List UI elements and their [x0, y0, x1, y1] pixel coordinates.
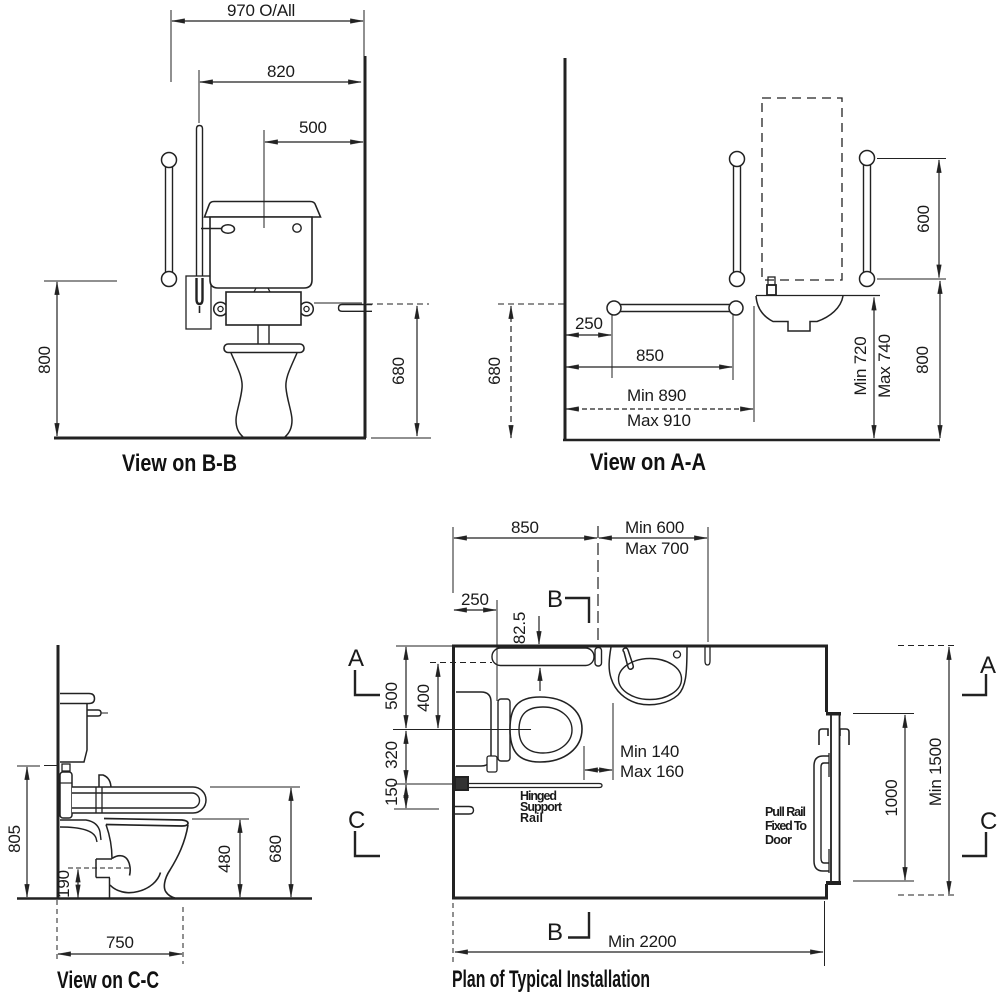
- svg-text:B: B: [547, 586, 563, 613]
- svg-text:A: A: [348, 645, 364, 672]
- svg-text:500: 500: [382, 682, 401, 710]
- svg-text:850: 850: [636, 346, 664, 365]
- svg-text:190: 190: [54, 870, 73, 898]
- svg-text:680: 680: [485, 357, 504, 385]
- svg-text:680: 680: [389, 357, 408, 385]
- svg-text:320: 320: [382, 741, 401, 769]
- svg-text:250: 250: [461, 590, 489, 609]
- svg-text:C: C: [348, 807, 365, 834]
- svg-text:850: 850: [511, 518, 539, 537]
- svg-text:View on B-B: View on B-B: [122, 450, 237, 477]
- svg-text:View on A-A: View on A-A: [590, 449, 706, 476]
- svg-text:400: 400: [414, 684, 433, 712]
- svg-text:Rail: Rail: [520, 811, 543, 825]
- svg-text:B: B: [547, 919, 563, 946]
- svg-text:480: 480: [215, 845, 234, 873]
- svg-text:Min 720: Min 720: [851, 336, 870, 395]
- svg-text:1000: 1000: [882, 779, 901, 816]
- svg-text:800: 800: [913, 346, 932, 374]
- svg-text:Plan of Typical Installation: Plan of Typical Installation: [452, 966, 650, 993]
- svg-text:View on C-C: View on C-C: [57, 967, 159, 994]
- svg-text:500: 500: [299, 118, 327, 137]
- svg-text:Door: Door: [765, 833, 792, 847]
- svg-text:Min 1500: Min 1500: [926, 738, 945, 806]
- svg-text:750: 750: [106, 933, 134, 952]
- svg-text:680: 680: [266, 835, 285, 863]
- svg-text:150: 150: [382, 778, 401, 806]
- svg-text:Pull Rail: Pull Rail: [765, 805, 806, 819]
- svg-text:800: 800: [35, 346, 54, 374]
- svg-text:Fixed To: Fixed To: [765, 819, 807, 833]
- svg-text:820: 820: [267, 62, 295, 81]
- svg-text:250: 250: [575, 314, 603, 333]
- svg-text:Max 910: Max 910: [627, 411, 691, 430]
- svg-text:600: 600: [914, 205, 933, 233]
- svg-text:C: C: [980, 808, 997, 835]
- svg-text:Min 890: Min 890: [627, 386, 686, 405]
- svg-text:Min 140: Min 140: [620, 742, 679, 761]
- svg-text:Max 160: Max 160: [620, 762, 684, 781]
- svg-text:Min 600: Min 600: [625, 518, 684, 537]
- svg-text:82.5: 82.5: [510, 612, 529, 644]
- svg-text:Max 700: Max 700: [625, 539, 689, 558]
- svg-text:Max 740: Max 740: [875, 334, 894, 398]
- svg-text:A: A: [980, 652, 996, 679]
- svg-text:805: 805: [5, 825, 24, 853]
- svg-text:970 O/All: 970 O/All: [227, 1, 295, 20]
- svg-text:Min 2200: Min 2200: [608, 932, 676, 951]
